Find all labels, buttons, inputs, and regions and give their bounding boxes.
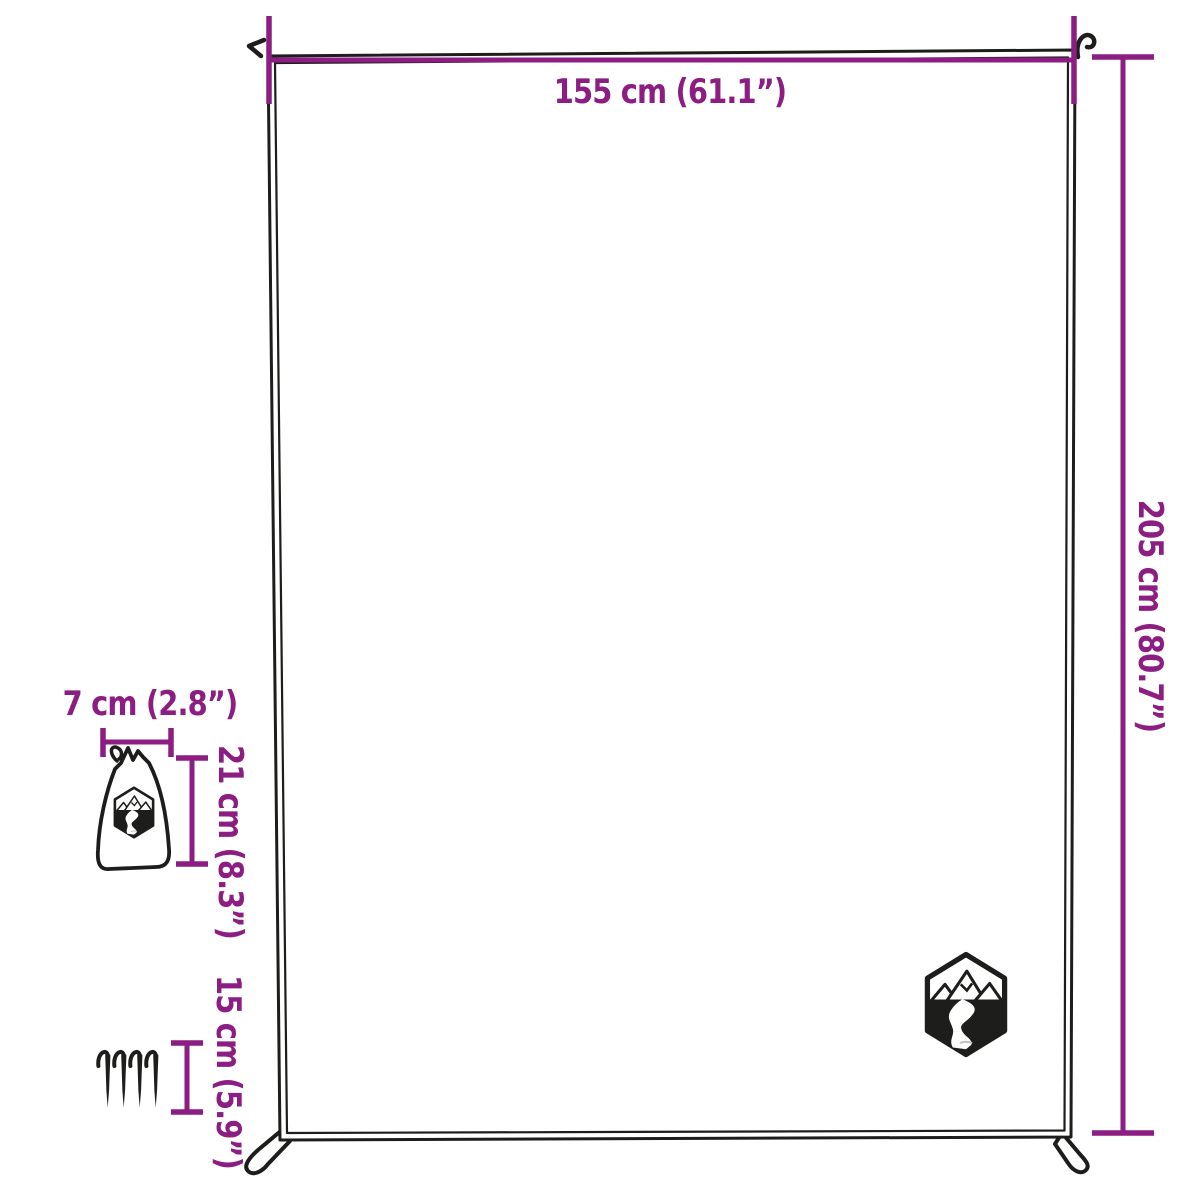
corner-loop-top-left-icon — [249, 40, 264, 56]
diagram-artwork — [0, 0, 1200, 1200]
peg-length-label: 15 cm (5.9”) — [211, 958, 245, 1186]
tent-peg-icon — [98, 1052, 110, 1108]
mountain-river-hexagon-logo — [927, 955, 1004, 1055]
blanket-width-label: 155 cm (61.1”) — [533, 75, 807, 109]
bag-logo-icon — [115, 788, 153, 838]
bag-width-label: 7 cm (2.8”) — [47, 687, 253, 721]
tent-peg-icon — [130, 1052, 142, 1108]
bag-height-dimension-line — [176, 758, 208, 864]
picnic-blanket-outline — [246, 35, 1094, 1173]
blanket-height-label: 205 cm (80.7”) — [1133, 479, 1167, 753]
corner-tab-bottom-right-icon — [1055, 1133, 1088, 1172]
peg-length-dimension-line — [171, 1043, 203, 1112]
bag-knot-icon — [111, 747, 121, 761]
bag-height-label: 21 cm (8.3”) — [213, 728, 247, 956]
tent-peg-icon — [146, 1052, 158, 1108]
tent-peg-icon — [114, 1052, 126, 1108]
carry-bag-icon — [98, 747, 169, 869]
tent-pegs-group — [98, 1052, 158, 1108]
product-dimension-diagram: 155 cm (61.1”) 205 cm (80.7”) 7 cm (2.8”… — [0, 0, 1200, 1200]
corner-loop-top-right-icon — [1077, 35, 1094, 57]
